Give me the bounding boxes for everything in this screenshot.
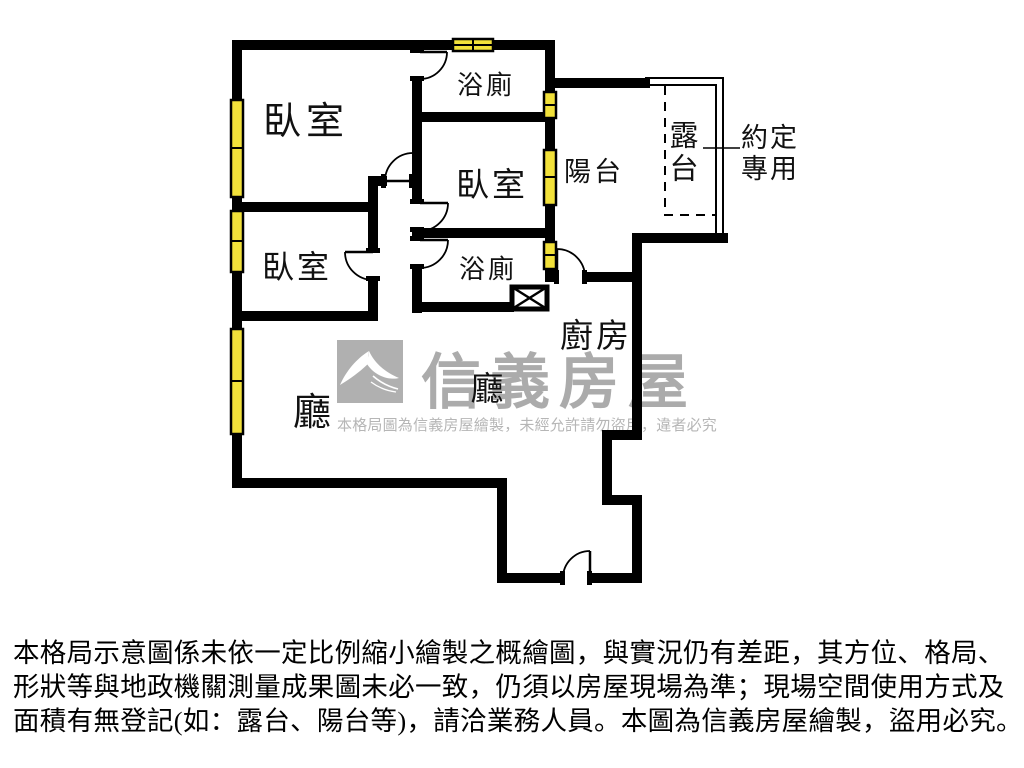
door-bedroom-lower-left [345,248,380,281]
watermark-brand-text: 信義房屋 [421,350,697,416]
door-main-entrance [560,551,592,585]
room-label-dining-hall: 廳 [471,371,504,408]
room-label-bedroom-middle: 臥室 [456,167,528,204]
disclaimer-line-2: 形狀等與地政機關測量成果圖未必一致，仍須以房屋現場為準；現場空間使用方式及 [13,670,1013,704]
room-label-terrace: 露台 [665,120,698,186]
window-right-bathroom-lower [544,242,556,269]
window-right-bedroom-middle [544,150,556,205]
label-agreed-use-line1: 約定 [741,123,799,153]
window-left-living [231,329,243,434]
watermark-notice-text: 本格局圖為信義房屋繪製，未經允許請勿盜用，違者必究 [337,416,717,434]
label-agreed-use-line2: 專用 [741,154,799,184]
door-bedroom-middle [410,199,448,232]
floorplan-svg: 信義房屋 本格局圖為信義房屋繪製，未經允許請勿盜用，違者必究 [0,0,1024,625]
door-top-bathroom [410,48,447,81]
room-label-bedroom-lower-left: 臥室 [262,249,332,285]
window-left-bedroom-lower [231,211,243,272]
door-balcony-kitchen [554,249,587,284]
door-bedroom-top-left [381,153,414,188]
pipe-shaft-box [512,287,547,309]
watermark: 信義房屋 本格局圖為信義房屋繪製，未經允許請勿盜用，違者必究 [337,340,717,434]
room-label-bedroom-top-left: 臥室 [263,101,349,143]
room-label-kitchen: 廚房 [560,318,632,355]
window-right-bathroom-top [544,92,556,118]
watermark-logo [337,340,403,403]
disclaimer-line-3: 面積有無登記(如：露台、陽台等)，請洽業務人員。本圖為信義房屋繪製，盜用必究。 [13,704,1013,738]
room-label-balcony: 陽台 [564,157,624,187]
room-label-bathroom-lower: 浴廁 [459,255,517,284]
floorplan-page: 信義房屋 本格局圖為信義房屋繪製，未經允許請勿盜用，違者必究 [0,0,1024,768]
room-label-bathroom-top: 浴廁 [457,71,515,100]
door-bathroom-lower [410,236,448,269]
window-top-bathroom [453,39,493,51]
disclaimer-text: 本格局示意圖係未依一定比例縮小繪製之概繪圖，與實況仍有差距，其方位、格局、 形狀… [13,636,1013,738]
window-left-bedroom-top [231,100,243,197]
disclaimer-line-1: 本格局示意圖係未依一定比例縮小繪製之概繪圖，與實況仍有差距，其方位、格局、 [13,636,1013,670]
room-label-living-hall: 廳 [293,392,331,434]
